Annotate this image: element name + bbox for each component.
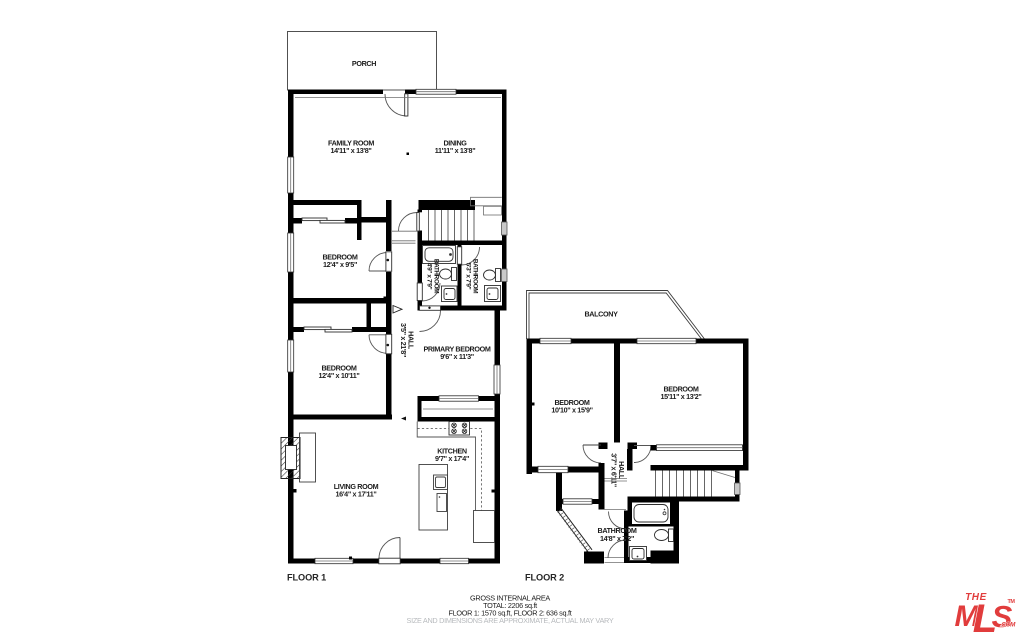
svg-text:FLOOR 2: FLOOR 2 [525, 573, 564, 583]
svg-text:12'4" x 10'11": 12'4" x 10'11" [319, 371, 360, 380]
svg-text:SIZE AND DIMENSIONS ARE APPROX: SIZE AND DIMENSIONS ARE APPROXIMATE, ACT… [407, 616, 614, 625]
svg-text:BALCONY: BALCONY [584, 310, 618, 319]
svg-text:BATHROOM: BATHROOM [472, 259, 479, 293]
svg-text:9'6" x 11'3": 9'6" x 11'3" [440, 352, 474, 361]
svg-text:14'8" x 7'2": 14'8" x 7'2" [600, 534, 634, 543]
svg-text:3'7" x 6'11": 3'7" x 6'11" [610, 453, 619, 487]
svg-text:4'9" x 7'9": 4'9" x 7'9" [426, 263, 433, 290]
svg-text:5'3" x 7'9": 5'3" x 7'9" [465, 263, 472, 290]
svg-text:15'11" x 13'2": 15'11" x 13'2" [661, 392, 702, 401]
svg-text:16'4" x 17'11": 16'4" x 17'11" [336, 490, 377, 499]
svg-text:12'4" x 9'5": 12'4" x 9'5" [323, 260, 357, 269]
svg-text:10'10" x 15'9": 10'10" x 15'9" [551, 406, 592, 415]
svg-text:.COM: .COM [1000, 622, 1016, 629]
svg-text:9'7" x 17'4": 9'7" x 17'4" [435, 454, 469, 463]
svg-text:FLOOR 1: FLOOR 1 [287, 573, 326, 583]
svg-text:14'11" x 13'8": 14'11" x 13'8" [331, 146, 372, 155]
svg-text:BATHROOM: BATHROOM [433, 259, 440, 293]
svg-text:PORCH: PORCH [352, 59, 376, 68]
svg-text:TM: TM [1008, 599, 1016, 605]
svg-text:3'5" x 21'8": 3'5" x 21'8" [399, 323, 408, 357]
svg-text:11'11" x 13'8": 11'11" x 13'8" [435, 146, 476, 155]
